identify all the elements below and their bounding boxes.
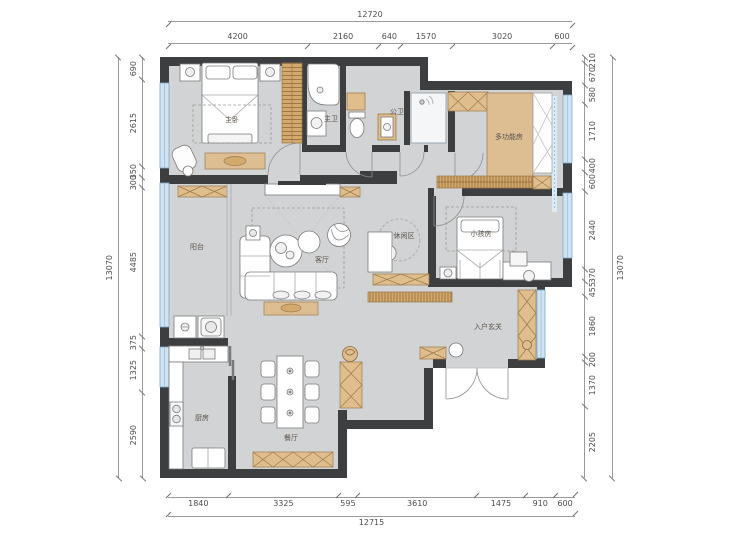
leisure-desk <box>368 232 396 272</box>
dim-value: 4200 <box>168 30 307 44</box>
dim-value: 2205 <box>584 407 599 478</box>
dim-value: 580 <box>584 85 599 104</box>
dim-left-total: 13070 <box>104 57 119 478</box>
room-label-kitchen: 厨房 <box>195 413 209 422</box>
dim-value: 2590 <box>128 392 143 478</box>
window-right-upper <box>563 95 572 163</box>
window-multifunction-inner <box>552 96 557 212</box>
room-label-balcony: 阳台 <box>190 242 204 251</box>
kids-bed <box>457 217 503 279</box>
dim-value: 4485 <box>128 188 143 336</box>
room-label-master-bathroom: 主卫 <box>324 114 338 123</box>
room-label-leisure-area: 休闲区 <box>394 231 415 240</box>
dim-value: 1370 <box>584 363 599 407</box>
door-entry-double <box>446 368 508 399</box>
multifunction-closet <box>533 93 552 173</box>
shoe-cabinet-plant <box>523 341 532 350</box>
dim-value: 595 <box>338 497 358 511</box>
floor-plan-drawing: 主卧 主卫 公卫 多功能房 小孩房 休闲区 客厅 阳台 入户玄关 厨房 餐厅 <box>150 50 580 490</box>
dining-table <box>261 356 319 428</box>
dim-value: 600 <box>552 30 572 44</box>
kids-nightstand <box>440 267 456 279</box>
dim-value: 1860 <box>584 297 599 357</box>
dim-value: 210 <box>584 57 599 64</box>
leisure-cabinet <box>373 274 429 285</box>
dim-value: 600 <box>555 497 575 511</box>
hall-wardrobe <box>437 176 533 188</box>
room-label-master-bedroom: 主卧 <box>225 115 239 124</box>
dim-value: 640 <box>379 30 400 44</box>
sofa-rug-oval <box>281 304 301 312</box>
room-label-kids-room: 小孩房 <box>471 229 492 238</box>
dim-value: 2440 <box>584 191 599 270</box>
bench-oval <box>224 157 246 166</box>
window-foyer <box>537 290 545 358</box>
dim-value: 13070 <box>104 57 119 478</box>
dim-value: 400 <box>584 159 599 172</box>
foyer-stool <box>449 343 463 357</box>
room-label-dining-room: 餐厅 <box>284 433 298 442</box>
plant <box>343 347 358 362</box>
window-right-mid <box>563 193 572 258</box>
multifunction-cabinet <box>448 92 488 111</box>
pbath-sink <box>378 114 396 140</box>
floor-plan-page: 12720 4200 2160 640 1570 3020 600 1840 3… <box>0 0 740 550</box>
dim-value: 1570 <box>400 30 452 44</box>
foyer-hatch-cabinet <box>368 292 452 302</box>
dim-value: 1710 <box>584 104 599 159</box>
tv-side-cabinet <box>340 187 360 197</box>
dim-value: 1475 <box>477 497 526 511</box>
bathtub <box>308 64 339 105</box>
dim-value: 12715 <box>168 516 575 530</box>
bedroom-side-table <box>183 166 193 176</box>
master-wardrobe <box>282 63 302 143</box>
toilet <box>349 112 365 138</box>
washing-machine <box>198 316 224 338</box>
dim-value: 370 <box>584 270 599 282</box>
dim-value: 910 <box>525 497 555 511</box>
dim-value: 1840 <box>168 497 229 511</box>
foyer-x-cabinet <box>420 347 446 359</box>
dim-value: 2160 <box>307 30 379 44</box>
dim-value: 1325 <box>128 349 143 393</box>
dim-left-segments: 690 2615 350 300 4485 375 1325 2590 <box>128 57 143 478</box>
room-label-living-room: 客厅 <box>315 255 329 264</box>
dim-value: 3325 <box>229 497 339 511</box>
window-left-lower <box>160 347 169 387</box>
shower-room <box>411 93 446 143</box>
dim-value: 12720 <box>168 8 572 22</box>
sideboard <box>253 452 333 467</box>
laundry-sink <box>174 316 196 338</box>
sofa-side-table <box>246 226 260 240</box>
window-balcony <box>160 183 169 327</box>
dim-value: 690 <box>128 57 143 80</box>
dim-value: 455 <box>584 282 599 297</box>
room-label-multifunction: 多功能房 <box>495 132 523 141</box>
dim-value: 600 <box>584 172 599 191</box>
dim-value: 3020 <box>452 30 552 44</box>
fridge <box>192 448 225 468</box>
dim-value: 13070 <box>612 57 627 478</box>
dim-value: 2615 <box>128 80 143 166</box>
balcony-top-cabinet <box>178 186 227 197</box>
window-left-upper <box>160 83 169 168</box>
room-label-public-bathroom: 公卫 <box>390 108 404 116</box>
dim-bottom-total: 12715 <box>168 516 575 530</box>
dining-x-cabinet <box>340 362 362 408</box>
stove <box>170 402 183 426</box>
dim-bottom-segments: 1840 3325 595 3610 1475 910 600 <box>168 497 575 511</box>
dim-top-segments: 4200 2160 640 1570 3020 600 <box>168 30 572 44</box>
dim-value: 670 <box>584 64 599 86</box>
dim-right-total: 13070 <box>612 57 627 478</box>
dim-top-total: 12720 <box>168 8 572 22</box>
dim-right-segments: 210 670 580 1710 400 600 2440 370 455 18… <box>584 57 599 478</box>
pbath-shelf <box>347 93 365 110</box>
dim-value: 3610 <box>358 497 477 511</box>
room-label-entry-foyer: 入户玄关 <box>474 322 502 331</box>
